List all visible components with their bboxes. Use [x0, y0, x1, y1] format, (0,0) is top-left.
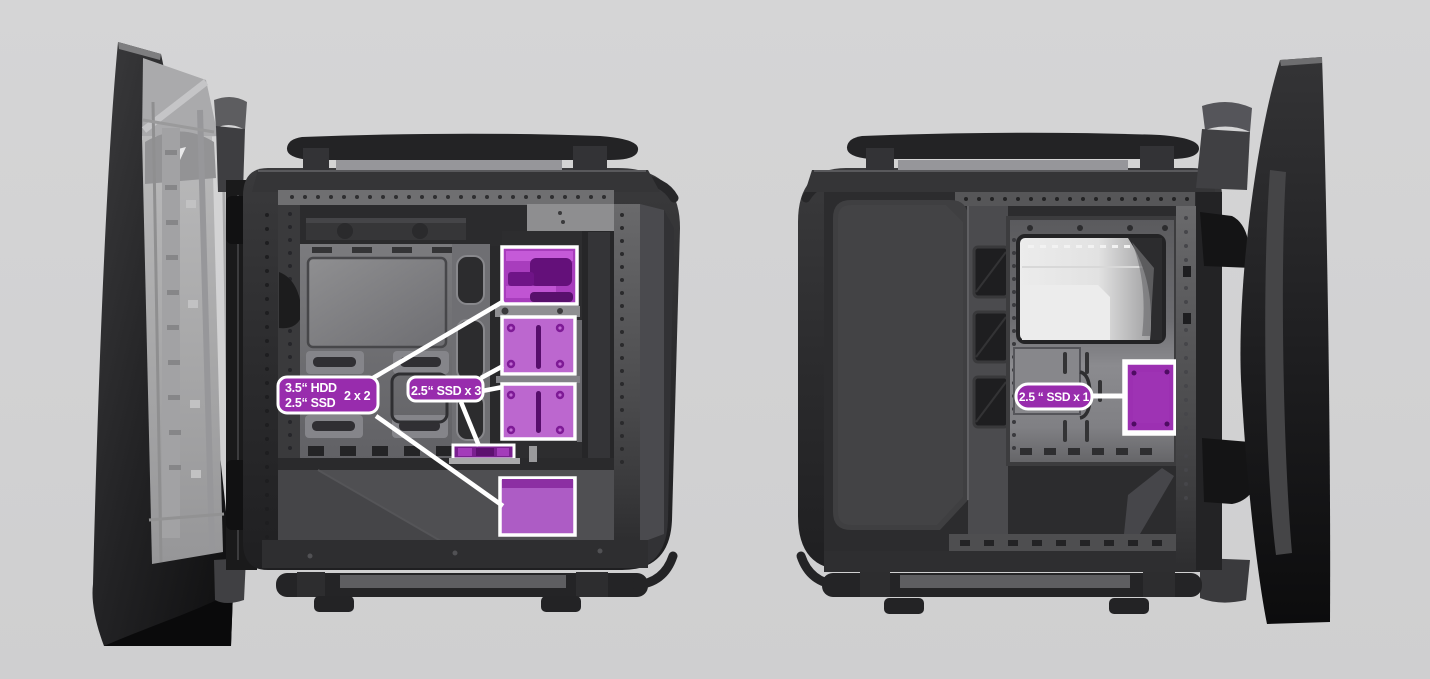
- svg-text:2.5“ SSD x 3: 2.5“ SSD x 3: [411, 384, 481, 398]
- svg-text:3.5“ HDD: 3.5“ HDD: [285, 381, 337, 395]
- svg-text:2 x 2: 2 x 2: [344, 389, 371, 403]
- svg-text:2.5“ SSD: 2.5“ SSD: [285, 396, 336, 410]
- svg-text:2.5 “ SSD x 1: 2.5 “ SSD x 1: [1019, 390, 1090, 404]
